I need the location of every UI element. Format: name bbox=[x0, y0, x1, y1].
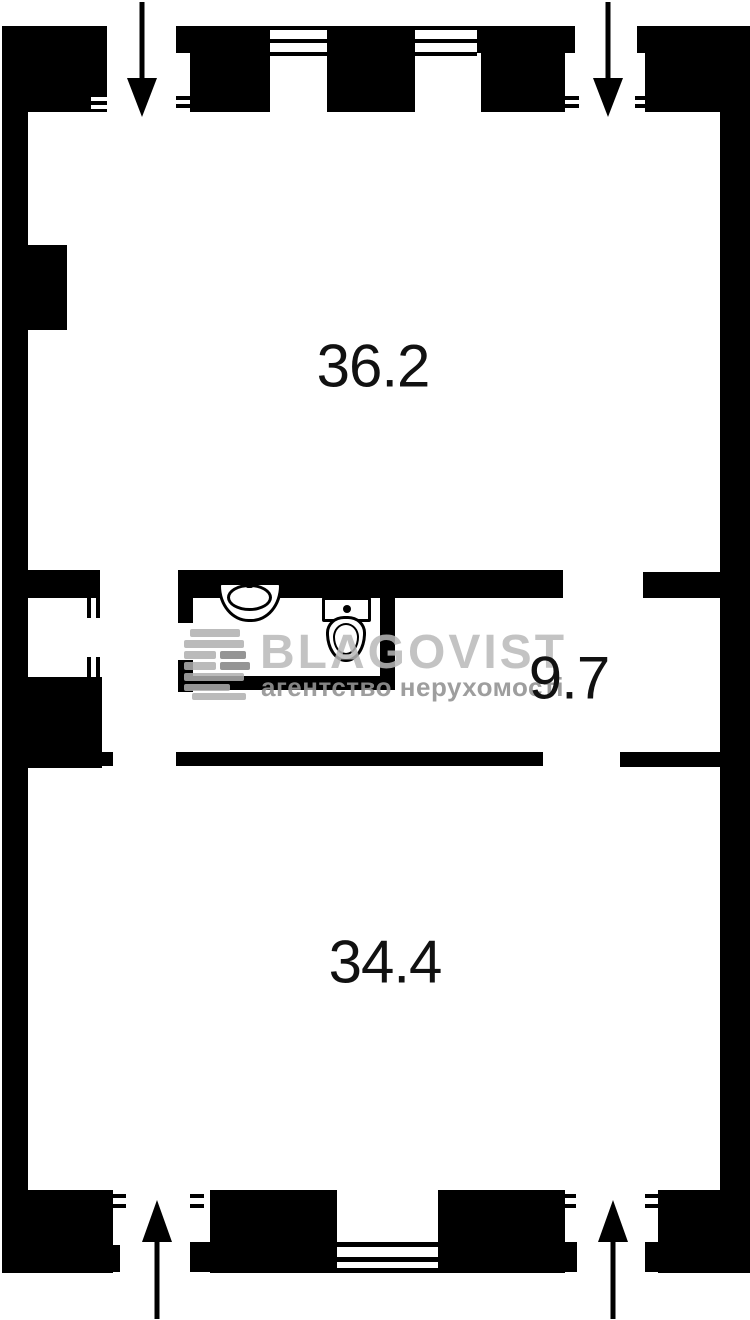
door-jamb-mark bbox=[91, 105, 107, 109]
door-jamb-mark bbox=[562, 1194, 576, 1198]
sink-bowl bbox=[227, 584, 272, 611]
wall-divider-lower-right bbox=[620, 752, 722, 767]
wall-top-pillar bbox=[190, 53, 270, 112]
wall-left bbox=[2, 26, 28, 1190]
window-icon bbox=[96, 657, 100, 678]
wall-top-right-block bbox=[645, 53, 750, 112]
wall-top-pillar bbox=[481, 53, 565, 112]
door-jamb-mark bbox=[565, 96, 579, 100]
door-jamb-mark bbox=[112, 1194, 126, 1198]
door-jamb-mark bbox=[112, 1204, 126, 1208]
watermark-brand: BLAGOVIST bbox=[260, 629, 567, 677]
entrance-arrow-up-icon bbox=[140, 1198, 174, 1319]
room-area-label-middle: 9.7 bbox=[529, 644, 609, 713]
window-icon bbox=[87, 598, 91, 618]
door-jamb-mark bbox=[176, 96, 190, 100]
wall-bottom-right-step bbox=[645, 1242, 658, 1272]
wall-divider-upper-right bbox=[643, 572, 722, 598]
wall-top-pillar bbox=[176, 26, 270, 53]
window-icon bbox=[337, 1268, 438, 1273]
window-icon bbox=[337, 1242, 438, 1247]
window-icon bbox=[270, 26, 327, 30]
room-area-label-lower: 34.4 bbox=[329, 928, 442, 997]
faucet-icon bbox=[246, 574, 253, 588]
entrance-arrow-up-icon bbox=[596, 1198, 630, 1319]
window-icon bbox=[270, 39, 327, 43]
watermark-tagline: агентство нерухомості bbox=[261, 674, 564, 700]
door-jamb-mark bbox=[645, 1194, 659, 1198]
wall-bottom-right-block bbox=[658, 1190, 750, 1273]
door-jamb-mark bbox=[645, 1204, 659, 1208]
door-jamb-mark bbox=[562, 1204, 576, 1208]
window-icon bbox=[87, 657, 91, 678]
window-icon bbox=[415, 39, 477, 43]
wall-bottom-left-block bbox=[2, 1190, 113, 1273]
window-icon bbox=[270, 52, 327, 56]
wall-bottom-pillar bbox=[190, 1242, 210, 1272]
wall-divider-lower-stub bbox=[100, 752, 113, 766]
door-jamb-mark bbox=[565, 104, 579, 108]
window-icon bbox=[415, 26, 477, 30]
wall-right bbox=[720, 112, 750, 1190]
wall-left-pier bbox=[28, 245, 67, 330]
wall-top-pillar bbox=[327, 26, 415, 112]
window-icon bbox=[415, 52, 477, 56]
toilet-flush-button bbox=[343, 605, 351, 613]
door-jamb-mark bbox=[190, 1204, 204, 1208]
door-jamb-mark bbox=[91, 97, 107, 101]
wall-left-block bbox=[2, 677, 102, 768]
entrance-arrow-down-icon bbox=[125, 2, 159, 120]
wall-divider-upper-left bbox=[28, 570, 100, 598]
door-jamb-mark bbox=[190, 1194, 204, 1198]
wall-top-right-block bbox=[637, 26, 750, 53]
wall-divider-lower-main bbox=[176, 752, 543, 766]
window-icon bbox=[96, 598, 100, 618]
window-icon bbox=[337, 1257, 438, 1262]
room-area-label-upper: 36.2 bbox=[317, 332, 430, 401]
wall-bottom-pillar bbox=[565, 1242, 577, 1272]
wall-bottom-pillar bbox=[438, 1190, 565, 1273]
wall-bottom-left-step bbox=[113, 1245, 120, 1272]
wall-top-pillar bbox=[477, 26, 575, 53]
wall-bathroom-left-upper bbox=[178, 570, 193, 623]
wall-bottom-pillar bbox=[210, 1190, 337, 1273]
floor-plan: BLAGOVIST агентство нерухомості 36.2 9.7… bbox=[0, 0, 750, 1320]
door-jamb-mark bbox=[176, 104, 190, 108]
entrance-arrow-down-icon bbox=[591, 2, 625, 120]
